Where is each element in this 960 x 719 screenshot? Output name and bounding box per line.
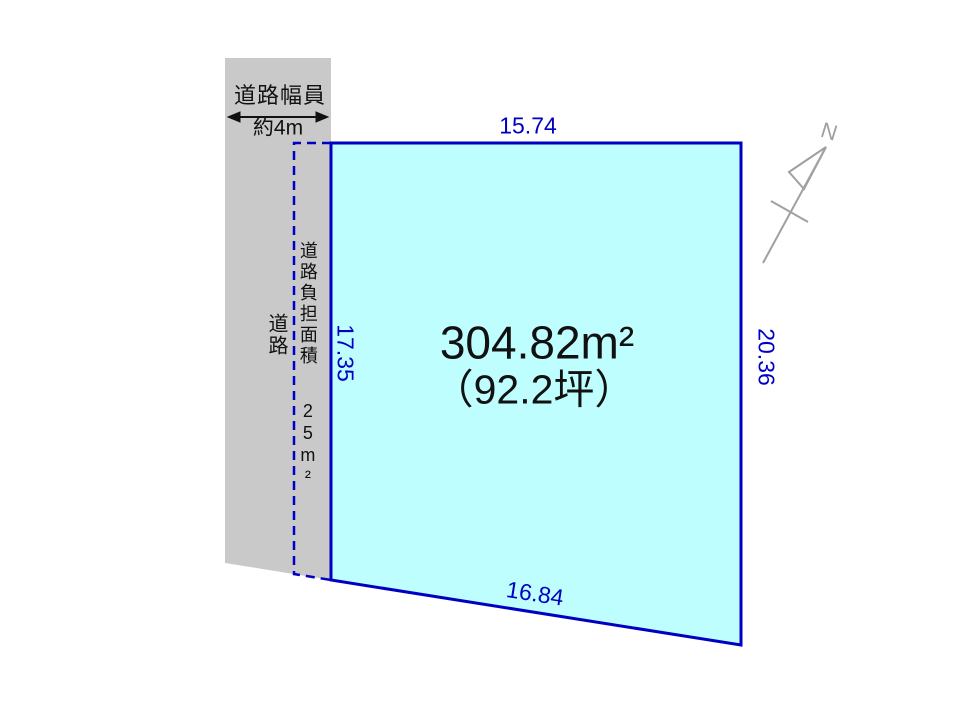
road-width-value: 約4m bbox=[253, 116, 303, 139]
dimension-left: 17.35 bbox=[332, 324, 357, 382]
road-burden-label: 道路負担面積 bbox=[297, 241, 317, 367]
north-arrow-icon bbox=[763, 147, 826, 263]
road-burden-value: 25m² bbox=[297, 401, 317, 489]
road-name-label: 道路 bbox=[265, 313, 287, 357]
land-plot-diagram: 道路幅員 約4m 道路 道路負担面積 25m² 15.74 17.35 20.3… bbox=[0, 0, 960, 719]
dimension-top: 15.74 bbox=[499, 113, 557, 138]
road-width-title: 道路幅員 bbox=[234, 84, 326, 108]
dimension-right: 20.36 bbox=[753, 328, 778, 386]
plot-area-sqm: 304.82m² bbox=[440, 318, 634, 369]
plot-area-tsubo: （92.2坪） bbox=[433, 367, 636, 412]
